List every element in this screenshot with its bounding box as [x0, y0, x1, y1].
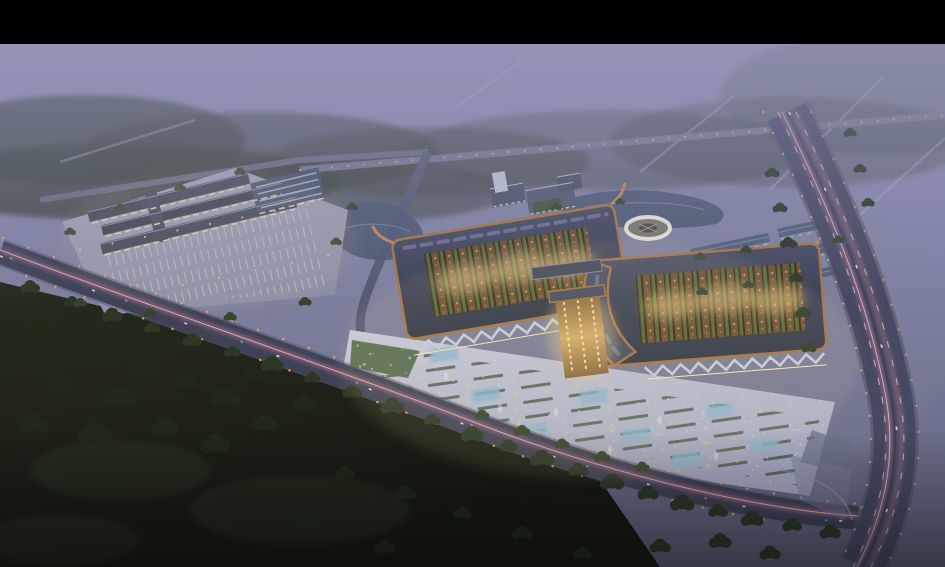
bottom-vignette	[0, 430, 945, 567]
letterbox-top	[0, 0, 945, 44]
rendering-viewport	[0, 0, 945, 567]
aerial-rendering	[0, 0, 945, 567]
fog-overlay	[0, 44, 945, 304]
